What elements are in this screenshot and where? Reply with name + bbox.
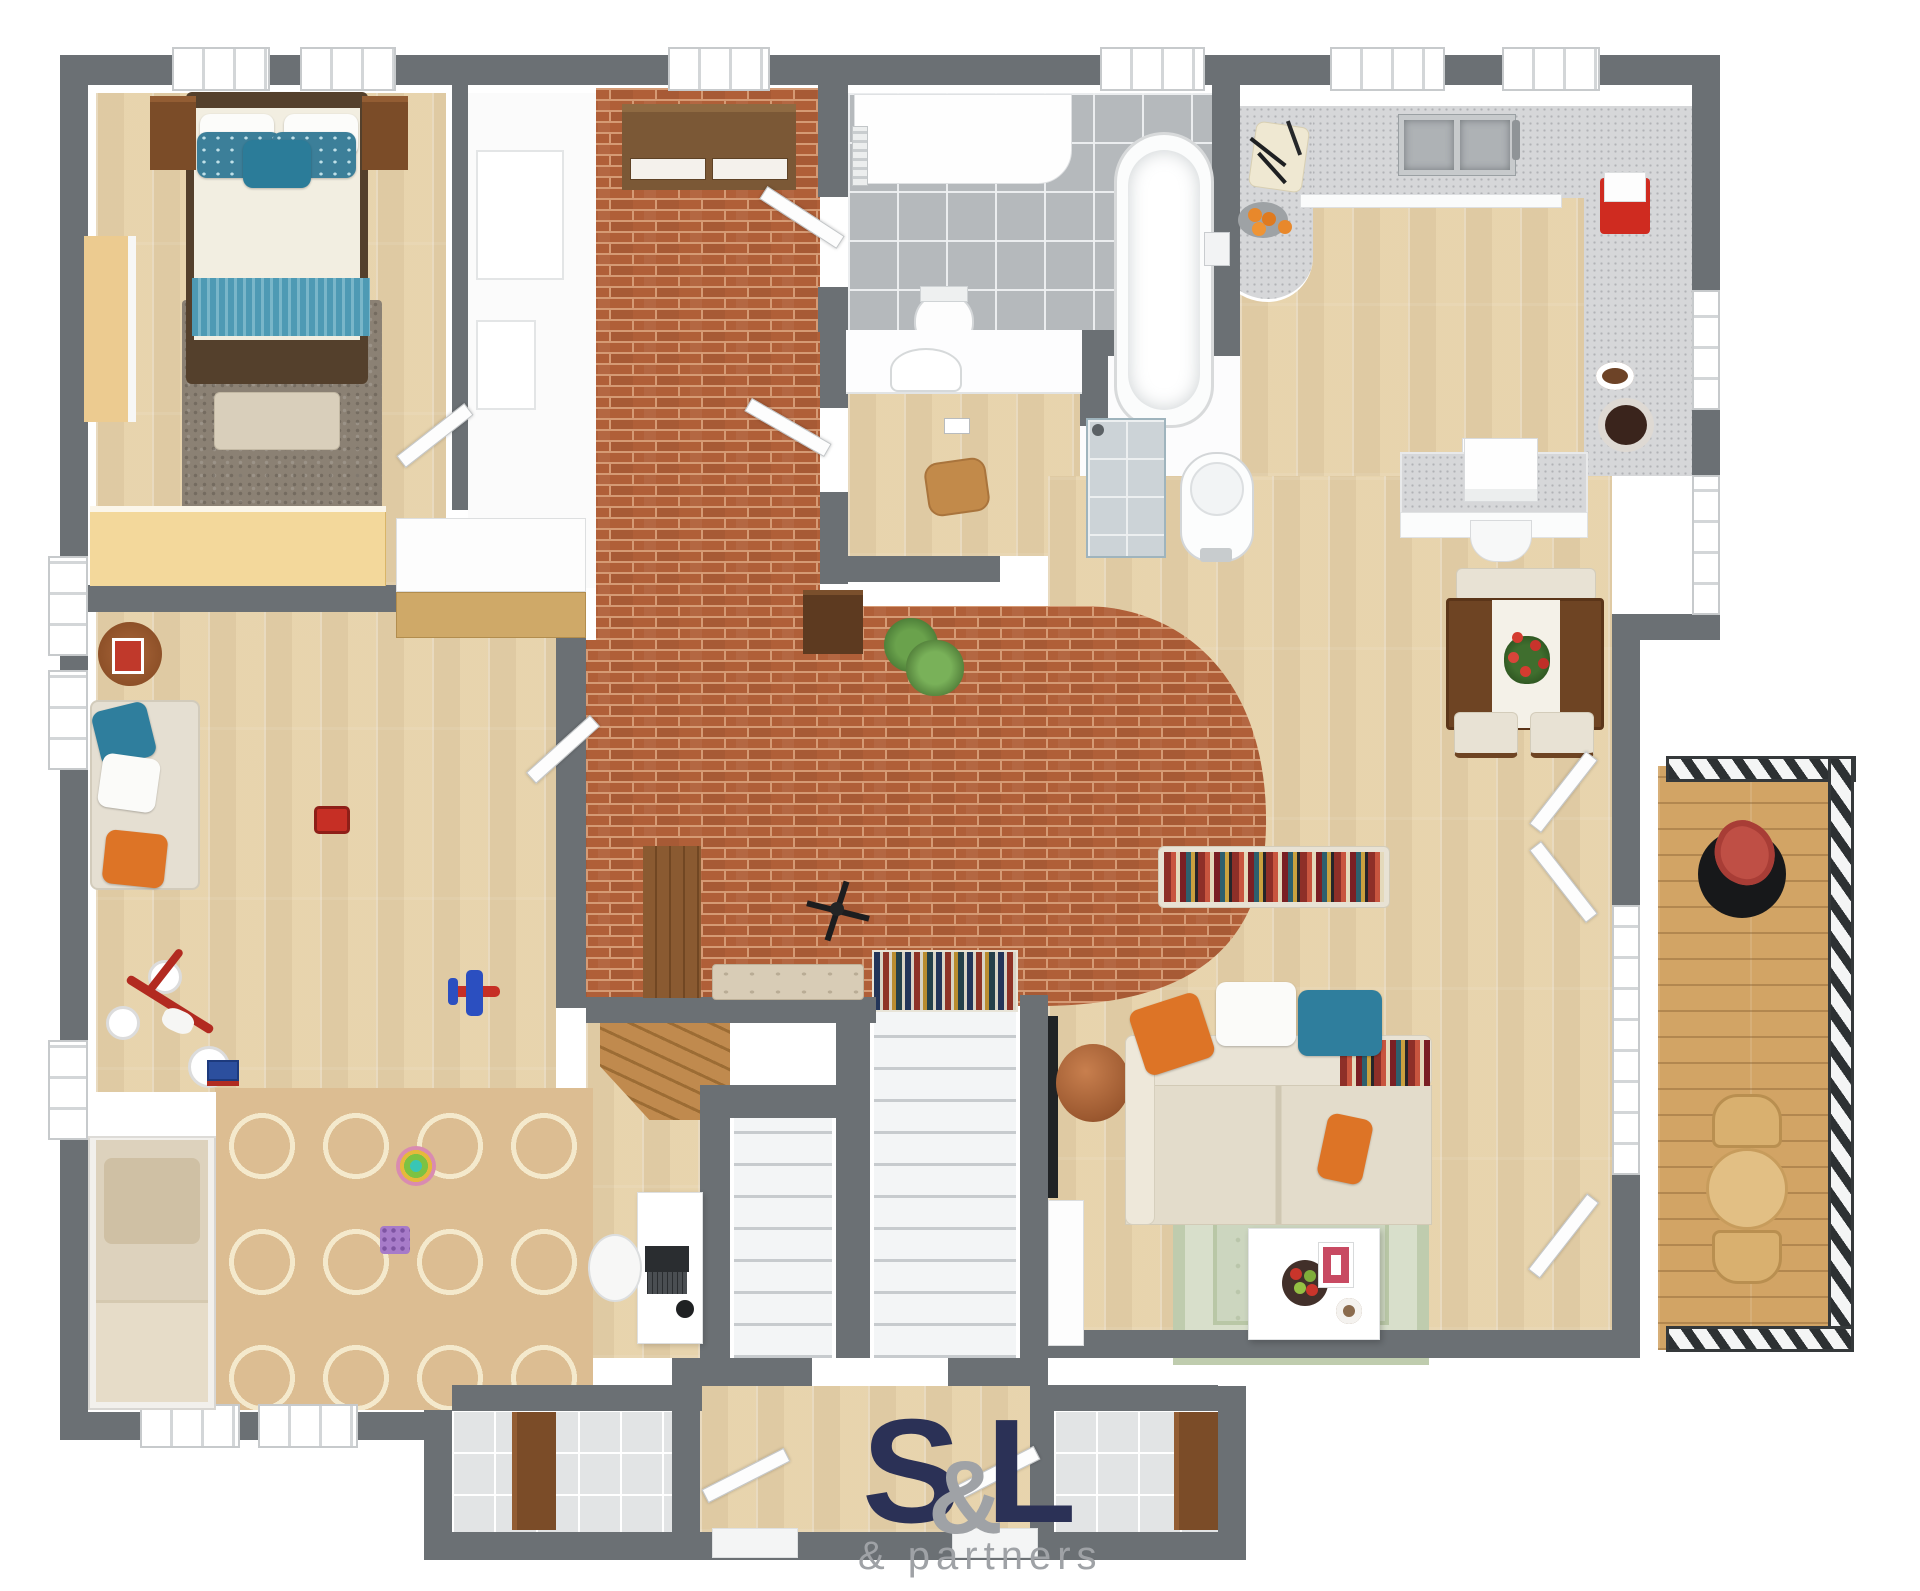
logo-tagline: & partners (858, 1534, 1103, 1579)
nightstand-left (150, 96, 196, 170)
leather-pouf (1056, 1044, 1130, 1122)
window (140, 1404, 240, 1448)
window (300, 47, 396, 91)
deck-chair (1712, 1094, 1782, 1148)
stair-striped-runner (872, 950, 1018, 1012)
balcony-railing-right (1828, 756, 1854, 1352)
storage-cabinet (1174, 1412, 1218, 1530)
washing-machine-pedal (1200, 548, 1232, 562)
coat-stand-hub (830, 902, 844, 916)
sink-faucet (1512, 120, 1520, 160)
orange-pillow (101, 829, 168, 889)
wall-rroom-right (1218, 1386, 1246, 1560)
apples (1290, 1268, 1302, 1280)
wall-living-left (1020, 995, 1048, 1330)
teal-pillow (1298, 990, 1382, 1056)
white-pillow (1216, 982, 1296, 1046)
window (48, 1040, 88, 1140)
entry-threshold (712, 1528, 798, 1558)
red-appliance-top (1604, 172, 1646, 202)
towel-rail (852, 126, 868, 186)
coat-cabinet (643, 846, 701, 998)
teal-accent-pillow (243, 140, 311, 188)
nightstand-right (362, 96, 408, 170)
time-magazine (112, 638, 144, 674)
white-pillow (97, 752, 162, 814)
wall-bedroom-right (452, 85, 468, 510)
stacking-rings-toy (396, 1146, 436, 1186)
daybed-headboard (88, 1092, 216, 1138)
logo-letter-l: L (986, 1398, 1076, 1546)
window (172, 47, 270, 91)
window (258, 1404, 358, 1448)
washing-machine-lid (1190, 462, 1244, 516)
flower-leaves (1504, 636, 1550, 684)
hall-wood-cabinet (803, 590, 863, 654)
small-dish (1336, 1298, 1362, 1324)
toilet-tank (920, 286, 968, 302)
hall-bench (712, 964, 864, 1000)
hall-sideboard-shelf (712, 158, 788, 180)
desk-lamp (676, 1300, 694, 1318)
sink-basin (1404, 120, 1454, 170)
magazine (1318, 1242, 1354, 1288)
orange (1248, 208, 1262, 222)
window (668, 47, 770, 91)
bed-blanket (192, 278, 370, 336)
wc-counter (846, 330, 1082, 394)
wardrobe-unit-top (396, 518, 586, 592)
dining-chair (1454, 712, 1518, 758)
window (1502, 47, 1600, 91)
wall-stair-divider (836, 1012, 870, 1358)
wall-step-right (1612, 614, 1720, 640)
balcony-railing-bottom (1666, 1326, 1854, 1352)
dresser (84, 236, 136, 422)
sofa-seat (1125, 1085, 1432, 1225)
wall-hall-bath-a (818, 85, 848, 197)
wall-wc-utility (1080, 330, 1108, 426)
window (1330, 47, 1445, 91)
window (48, 670, 88, 770)
window (1692, 290, 1720, 410)
chocolate-plate (1596, 362, 1634, 390)
window (48, 556, 88, 656)
wall-entry-top-a (672, 1358, 812, 1386)
window-balcony-wall (1612, 905, 1640, 1175)
toy-easel (207, 1060, 239, 1086)
dining-bench (1456, 568, 1596, 602)
wall-bottom (424, 1532, 1246, 1560)
foot-bench (214, 392, 340, 450)
wall-wc-south (820, 556, 1000, 582)
laptop-keyboard (647, 1272, 687, 1294)
window (1692, 475, 1720, 615)
wall-entry-top-b (948, 1358, 1048, 1386)
bedroom-sideboard (90, 506, 386, 586)
wall-hall-south (586, 997, 876, 1023)
window (1100, 47, 1205, 91)
bathtub-basin (1128, 150, 1200, 410)
wall-stair-left (700, 1118, 730, 1358)
desk-chair (1470, 520, 1532, 562)
daybed-blanket (96, 1300, 208, 1402)
closet-cabinet (476, 320, 536, 410)
toy-car (314, 806, 350, 834)
hall-sideboard-shelf (630, 158, 706, 180)
toy-blocks (380, 1226, 410, 1254)
wall-bath-kitchen (1212, 85, 1240, 356)
media-console (1048, 1200, 1084, 1346)
storage-cabinet (512, 1412, 556, 1530)
fruit-bowl (1238, 202, 1288, 238)
printer (1464, 438, 1538, 502)
wall-tv (1048, 1016, 1058, 1198)
bathroom-vanity (854, 94, 1072, 184)
toy-plane-wings (466, 970, 483, 1016)
wardrobe-unit-drawers (396, 592, 586, 638)
wall-wc-left-a (820, 332, 848, 408)
shower-head (1092, 424, 1104, 436)
deck-chair (1712, 1230, 1782, 1284)
wc-round-basin (890, 348, 962, 392)
kitchen-cabinet-edge (1300, 194, 1562, 208)
potted-plant-leaves (906, 640, 964, 696)
serving-bowl (1598, 398, 1654, 452)
toy-plane-tail (448, 978, 458, 1005)
stairs-return-flight (730, 1118, 836, 1358)
wall-hall-bath-b (818, 287, 848, 332)
cutting-board (1248, 121, 1311, 194)
bistro-table (1706, 1148, 1788, 1230)
sink-basin (1460, 120, 1510, 170)
flower-blossom (1512, 632, 1523, 643)
wall-lroom-top (452, 1385, 702, 1411)
closet-cabinet (476, 150, 564, 280)
wall-bottom-left (60, 1412, 452, 1440)
chaise-striped-cushion (1164, 852, 1384, 902)
laptop (645, 1246, 689, 1272)
floor-plan-canvas: S & L & partners (0, 0, 1920, 1591)
kids-desk-chair (588, 1234, 642, 1302)
tricycle-wheel (106, 1006, 140, 1040)
shower-stall (1086, 418, 1166, 558)
bathtub-faucet (1204, 232, 1230, 266)
wall-hall-left-lower (556, 640, 586, 1008)
wc-wooden-table (923, 456, 992, 518)
wall-stair-top (700, 1085, 836, 1118)
toilet-paper-holder (944, 418, 970, 434)
daybed-pillow (104, 1158, 200, 1244)
stairs-wide-flight (870, 1012, 1020, 1358)
